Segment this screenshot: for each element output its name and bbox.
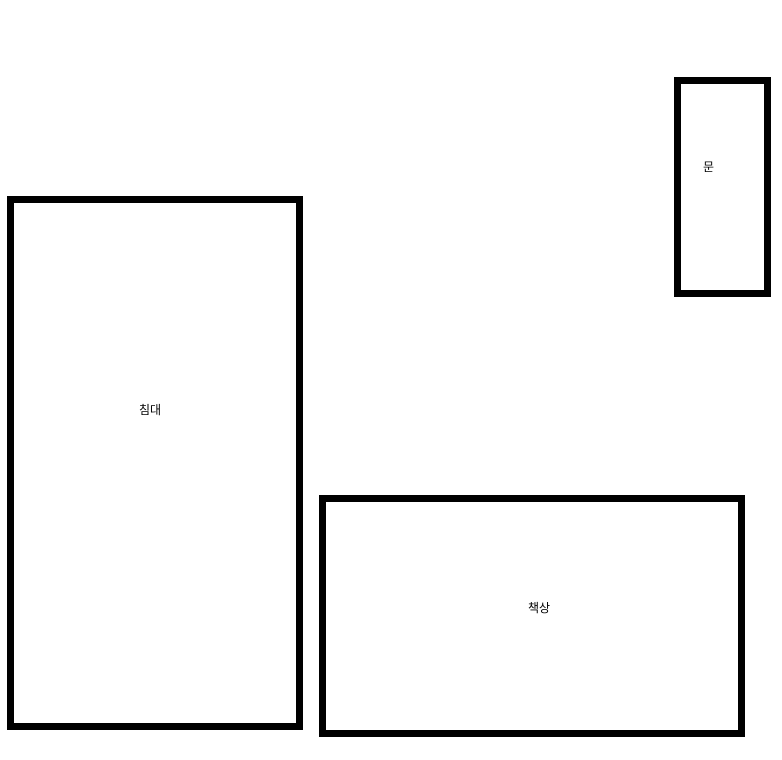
- bed-label: 침대: [139, 403, 161, 417]
- desk-rectangle: 책상: [319, 495, 745, 737]
- floor-plan-canvas: 침대 책상 문: [0, 0, 782, 760]
- desk-label: 책상: [528, 601, 550, 615]
- door-rectangle: 문: [674, 77, 771, 297]
- bed-rectangle: 침대: [7, 196, 303, 730]
- door-label: 문: [703, 160, 714, 174]
